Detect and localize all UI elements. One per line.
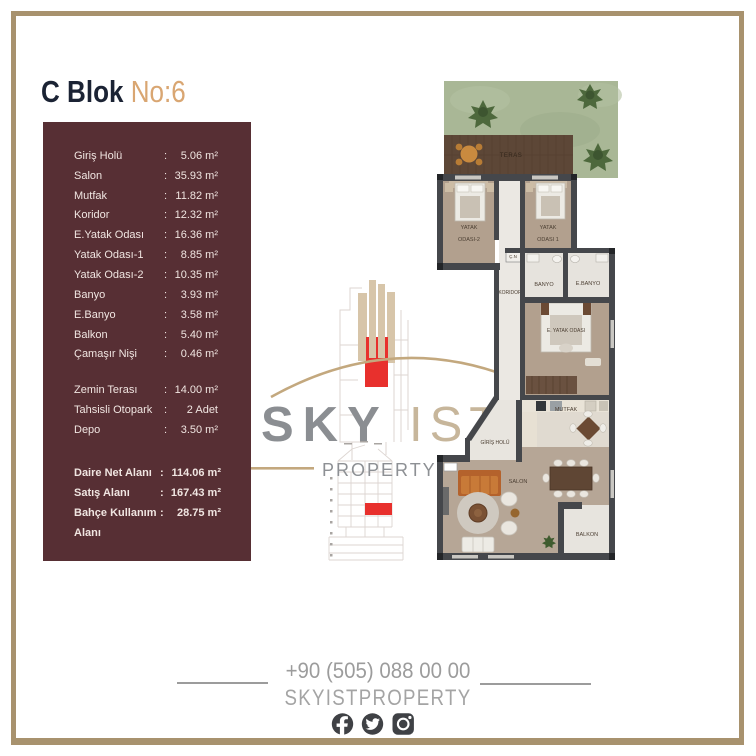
svg-text:E. YATAK ODASI: E. YATAK ODASI (547, 328, 585, 334)
svg-text:BANYO: BANYO (534, 282, 554, 288)
svg-text:Ç.N: Ç.N (509, 254, 517, 259)
svg-text:ODASI-2: ODASI-2 (458, 237, 480, 243)
svg-text:GİRİŞ HOLÜ: GİRİŞ HOLÜ (481, 439, 510, 446)
svg-text:SKY: SKY (261, 398, 389, 452)
svg-text:KORIDOR: KORIDOR (498, 290, 522, 296)
svg-text:E.BANYO: E.BANYO (576, 281, 601, 287)
svg-text:SALON: SALON (509, 479, 528, 485)
svg-text:TERAS: TERAS (500, 153, 523, 159)
svg-text:YATAK: YATAK (540, 225, 557, 231)
svg-text:PROPERTY: PROPERTY (322, 460, 437, 480)
svg-text:ODASI 1: ODASI 1 (537, 237, 559, 243)
svg-text:MUTFAK: MUTFAK (555, 407, 578, 413)
svg-text:BALKON: BALKON (576, 532, 598, 538)
svg-text:YATAK: YATAK (461, 225, 478, 231)
